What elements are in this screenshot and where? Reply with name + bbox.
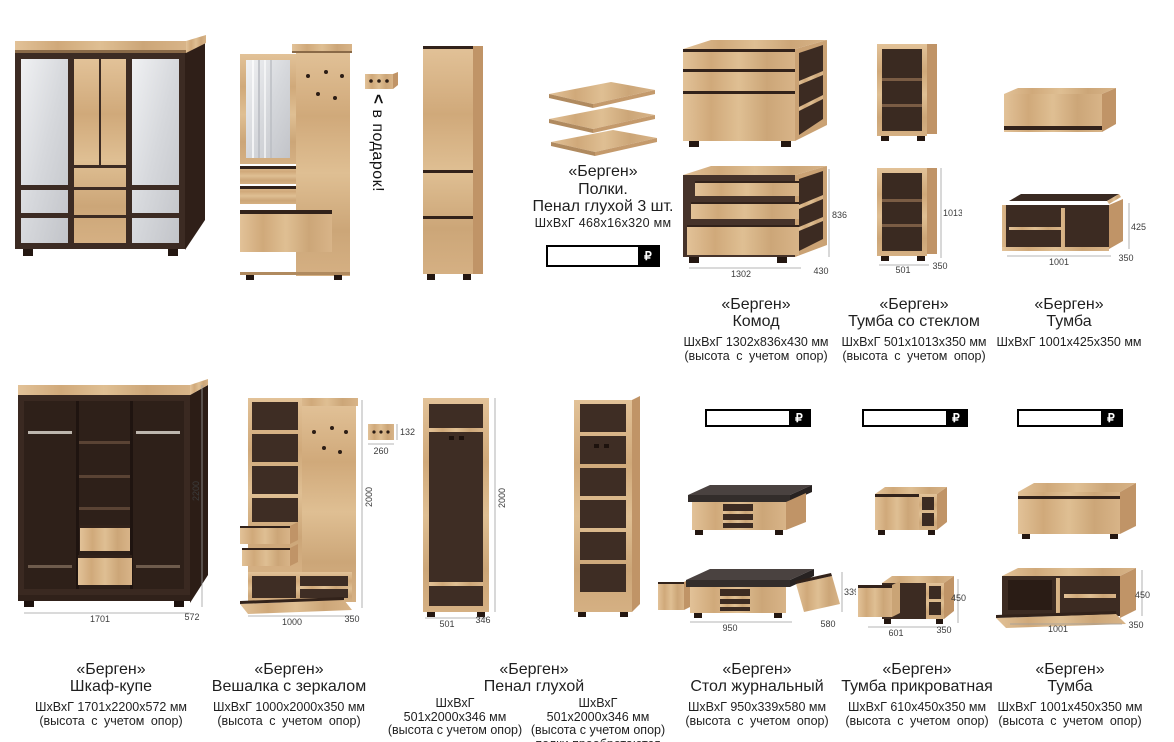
shelves-title: «Берген» <box>498 163 708 181</box>
shelves-line2: Полки. <box>498 181 708 199</box>
shelves-dims: ШхВхГ 468х16х320 мм <box>498 216 708 230</box>
caption-veshalka: «Берген» Вешалка с зеркалом ШхВхГ 1000х2… <box>184 661 394 728</box>
dim-wall-height: 425 <box>1131 222 1146 232</box>
dim-prikr-height: 450 <box>951 593 966 603</box>
dim-stol-depth: 580 <box>820 619 835 629</box>
dim-hooks-width: 260 <box>373 446 388 456</box>
price-field[interactable] <box>548 247 638 265</box>
caption-steklo-note: (высота с учетом опор) <box>809 350 1019 364</box>
caption-wall-dims: ШхВхГ 1001х425х350 мм <box>964 336 1174 350</box>
dim-steklo-width: 501 <box>895 265 910 274</box>
illustration-komod-open: 836 1302 430 <box>681 165 848 283</box>
illustration-stol-closed <box>679 477 824 541</box>
caption-penal-name: Пенал глухой <box>424 678 644 695</box>
illustration-tumba-big-open: 450 1001 350 <box>996 560 1158 634</box>
caption-wall-series: «Берген» <box>964 296 1174 313</box>
price-box-tumba-prikrovatnaya[interactable]: ₽ <box>862 409 968 427</box>
illustration-tumba-wall-closed <box>1002 86 1118 138</box>
dim-wall-depth: 350 <box>1118 253 1133 263</box>
illustration-shkaf-open: 2200 1701 572 <box>14 379 229 627</box>
caption-veshalka-series: «Берген» <box>184 661 394 678</box>
dim-veshalka-width: 1000 <box>282 617 302 627</box>
price-field[interactable] <box>1019 411 1101 425</box>
ruble-icon: ₽ <box>638 247 658 265</box>
illustration-tumba-big-closed <box>1014 478 1140 542</box>
dim-penal-height: 2000 <box>497 488 507 508</box>
price-box-stol[interactable]: ₽ <box>705 409 811 427</box>
caption-tumba-big-name: Тумба <box>965 678 1174 695</box>
caption-wall-name: Тумба <box>964 313 1174 330</box>
ruble-icon: ₽ <box>789 411 809 425</box>
dim-shkaf-height: 2200 <box>191 481 201 501</box>
dim-komod-depth: 430 <box>813 266 828 276</box>
dim-steklo-height: 1013 <box>943 208 962 218</box>
caption-tumba-wall: «Берген» Тумба ШхВхГ 1001х425х350 мм <box>964 296 1174 350</box>
dim-prikr-width: 601 <box>888 628 903 637</box>
price-box-shelves[interactable]: ₽ <box>546 245 660 267</box>
gift-badge: <в подарок! <box>368 94 388 192</box>
illustration-veshalka-open: 2000 1000 350 132 260 <box>240 392 418 632</box>
caption-tumba-big-note: (высота с учетом опор) <box>965 715 1174 729</box>
dim-tumba-big-width: 1001 <box>1048 624 1068 634</box>
dim-wall-width: 1001 <box>1049 257 1069 267</box>
chevron-left-icon: < <box>369 94 388 104</box>
illustration-stol-open: 339 950 580 <box>656 560 856 634</box>
dim-steklo-depth: 350 <box>932 261 947 271</box>
dim-tumba-big-depth: 350 <box>1128 620 1143 630</box>
caption-penal-series: «Берген» <box>424 661 644 678</box>
caption-tumba-big-dims: ШхВхГ 1001х450х350 мм <box>965 701 1174 715</box>
catalog-page: <в подарок! «Берген» Полки. Пенал глухой… <box>0 0 1174 742</box>
dim-hooks-height: 132 <box>400 427 415 437</box>
dim-komod-width: 1302 <box>731 269 751 279</box>
illustration-hook-panel-gift <box>365 71 399 93</box>
caption-veshalka-dims: ШхВхГ 1000х2000х350 мм <box>184 701 394 715</box>
caption-penal-title: «Берген» Пенал глухой <box>424 661 644 695</box>
shelves-caption: «Берген» Полки. Пенал глухой 3 шт. ШхВхГ… <box>498 163 708 230</box>
illustration-tumba-prikrovatnaya-open: 450 601 350 <box>858 571 970 637</box>
ruble-icon: ₽ <box>1101 411 1121 425</box>
dim-stol-width: 950 <box>722 623 737 633</box>
caption-tumba-big-series: «Берген» <box>965 661 1174 678</box>
illustration-tumba-prikrovatnaya-closed <box>870 482 952 542</box>
illustration-penal-shelves-open <box>570 394 642 626</box>
caption-penal-right-l4: полки преобретаются <box>508 738 688 742</box>
illustration-komod-closed <box>681 37 833 151</box>
illustration-tumba-wall-open: 425 1001 350 <box>983 193 1153 271</box>
illustration-penal-closed <box>423 42 485 285</box>
dim-penal-width: 501 <box>439 619 454 629</box>
dim-komod-height: 836 <box>832 210 847 220</box>
dim-shkaf-width: 1701 <box>90 614 110 624</box>
illustration-penal-open: 2000 501 346 <box>421 394 513 634</box>
dim-tumba-big-height: 450 <box>1135 590 1150 600</box>
dim-prikr-depth: 350 <box>936 625 951 635</box>
illustration-shelves <box>543 78 661 156</box>
illustration-tumba-steklo-open: 1013 501 350 <box>877 166 962 274</box>
caption-veshalka-name: Вешалка с зеркалом <box>184 678 394 695</box>
dim-shkaf-depth: 572 <box>184 612 199 622</box>
price-field[interactable] <box>707 411 789 425</box>
dim-veshalka-height: 2000 <box>364 487 374 507</box>
gift-label: в подарок! <box>369 109 386 192</box>
shelves-line3: Пенал глухой 3 шт. <box>498 198 708 216</box>
price-field[interactable] <box>864 411 946 425</box>
dim-stol-height: 339 <box>844 587 856 597</box>
illustration-tumba-steklo-closed <box>877 40 939 144</box>
illustration-hallway-closed <box>238 42 360 294</box>
dim-veshalka-depth: 350 <box>344 614 359 624</box>
caption-veshalka-note: (высота с учетом опор) <box>184 715 394 729</box>
illustration-wardrobe-closed <box>13 34 209 272</box>
dim-penal-depth: 346 <box>475 615 490 625</box>
caption-tumba-big: «Берген» Тумба ШхВхГ 1001х450х350 мм (вы… <box>965 661 1174 728</box>
price-box-tumba[interactable]: ₽ <box>1017 409 1123 427</box>
ruble-icon: ₽ <box>946 411 966 425</box>
